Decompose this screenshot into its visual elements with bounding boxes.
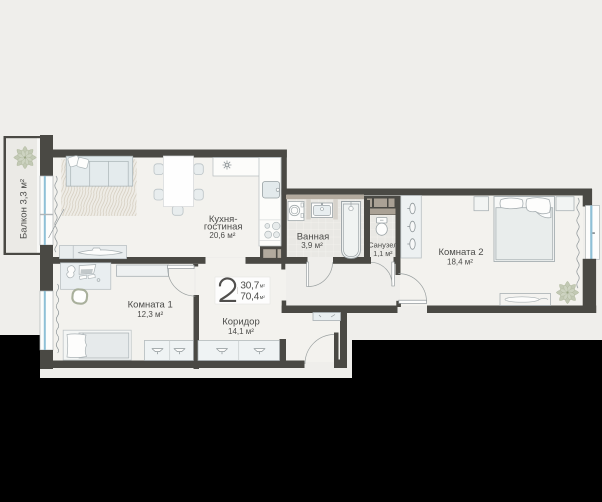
svg-text:3,9 м²: 3,9 м² <box>301 241 323 250</box>
svg-text:м²: м² <box>260 295 265 301</box>
svg-text:м²: м² <box>260 283 265 289</box>
svg-text:30,7: 30,7 <box>240 281 259 292</box>
svg-text:Коридор: Коридор <box>222 316 260 327</box>
svg-text:Комната 1: Комната 1 <box>128 299 173 310</box>
svg-text:12,3 м²: 12,3 м² <box>137 310 163 319</box>
svg-text:18,4 м²: 18,4 м² <box>447 258 473 267</box>
svg-text:20,6 м²: 20,6 м² <box>209 231 235 240</box>
svg-text:70,4: 70,4 <box>240 292 259 303</box>
svg-text:Балкон 3,3 м²: Балкон 3,3 м² <box>19 179 30 239</box>
svg-text:1,1 м²: 1,1 м² <box>373 249 393 258</box>
svg-text:Санузел: Санузел <box>368 240 398 249</box>
svg-text:Комната 2: Комната 2 <box>438 247 483 258</box>
svg-text:14,1 м²: 14,1 м² <box>228 327 254 336</box>
